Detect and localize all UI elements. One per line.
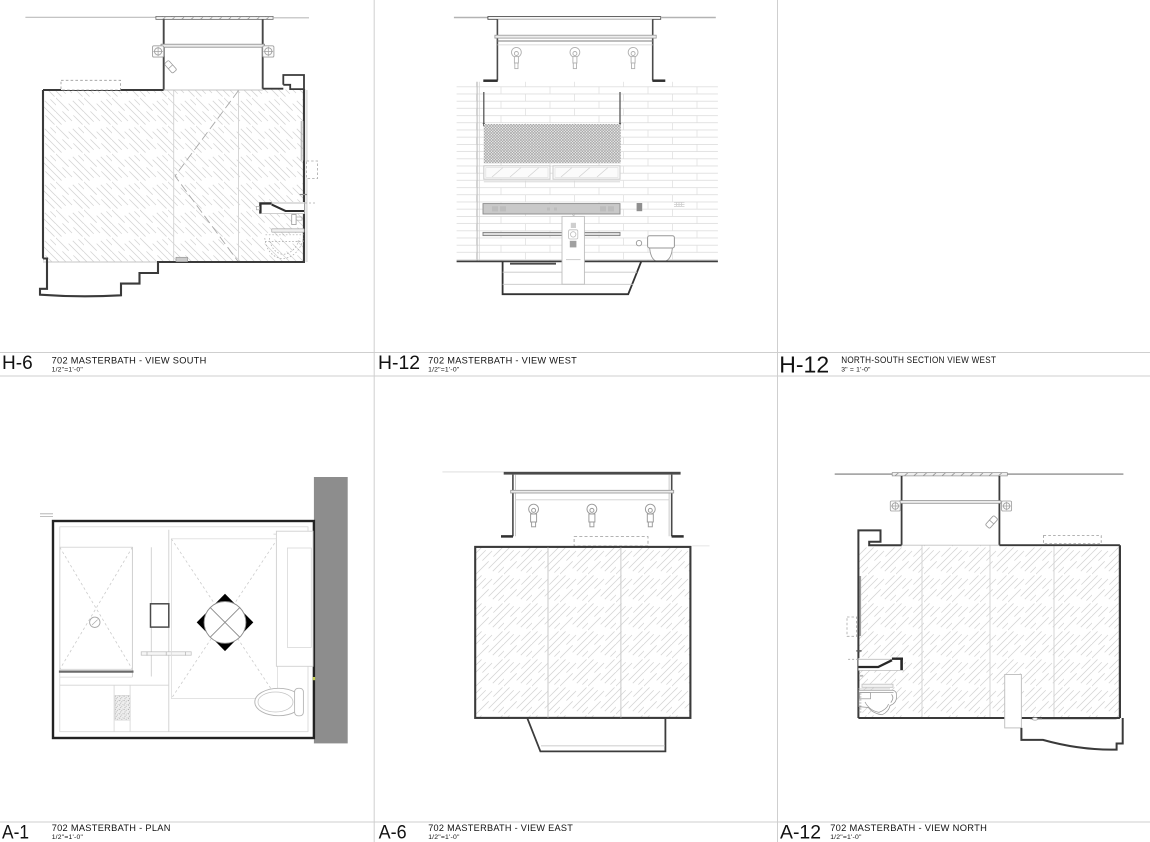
svg-text:H-12: H-12	[779, 352, 829, 378]
svg-text:1/2"=1'-0": 1/2"=1'-0"	[428, 834, 460, 841]
svg-text:NORTH-SOUTH SECTION VIEW WEST: NORTH-SOUTH SECTION VIEW WEST	[841, 355, 996, 366]
svg-text:702 MASTERBATH - VIEW WEST: 702 MASTERBATH - VIEW WEST	[428, 356, 577, 367]
svg-text:H-12: H-12	[378, 353, 420, 374]
svg-text:1/2"=1'-0": 1/2"=1'-0"	[52, 366, 84, 373]
svg-text:1/2"=1'-0": 1/2"=1'-0"	[830, 834, 862, 841]
svg-text:702 MASTERBATH - VIEW SOUTH: 702 MASTERBATH - VIEW SOUTH	[52, 356, 207, 367]
svg-text:1/2"=1'-0": 1/2"=1'-0"	[52, 834, 84, 841]
svg-text:A-6: A-6	[379, 823, 407, 842]
svg-text:702 MASTERBATH - VIEW NORTH: 702 MASTERBATH - VIEW NORTH	[830, 823, 987, 834]
svg-text:A-1: A-1	[2, 823, 29, 842]
svg-text:1/2"=1'-0": 1/2"=1'-0"	[428, 366, 460, 373]
svg-text:3" = 1'-0": 3" = 1'-0"	[841, 367, 871, 374]
svg-text:A-12: A-12	[780, 823, 821, 842]
svg-text:702 MASTERBATH - PLAN: 702 MASTERBATH - PLAN	[52, 823, 171, 834]
svg-text:H-6: H-6	[2, 353, 33, 374]
svg-text:702 MASTERBATH - VIEW EAST: 702 MASTERBATH - VIEW EAST	[428, 823, 573, 834]
